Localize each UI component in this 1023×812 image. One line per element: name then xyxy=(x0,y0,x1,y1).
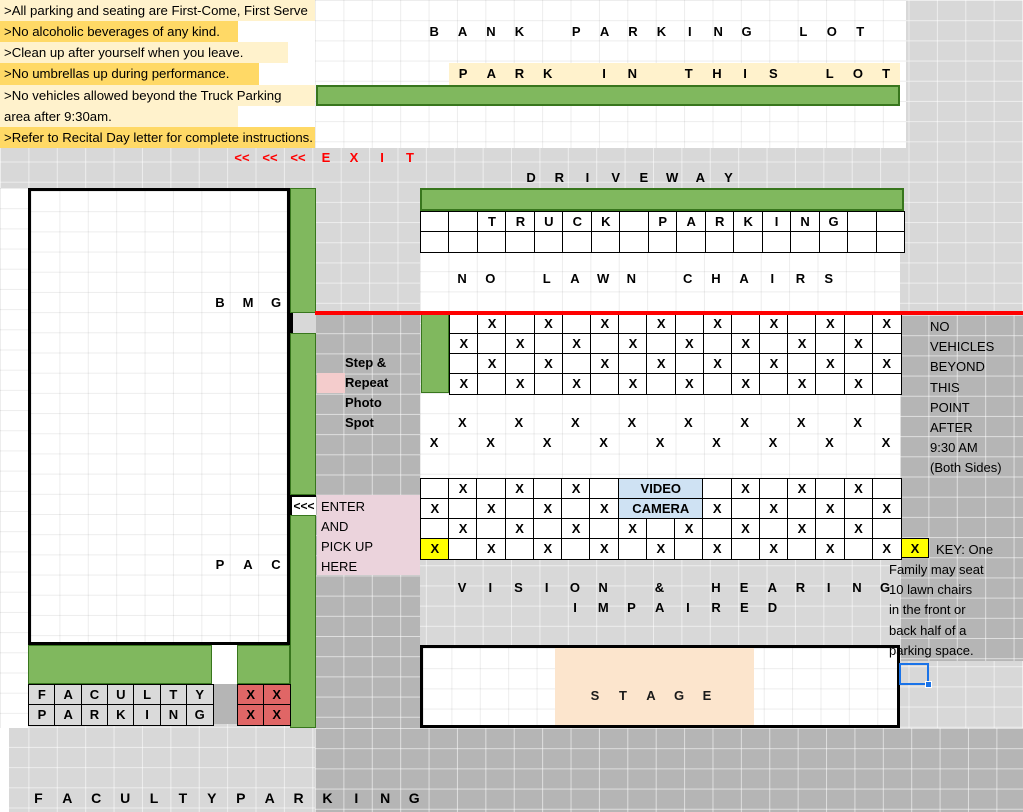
selection-fill-handle[interactable] xyxy=(925,681,932,688)
spreadsheet-canvas[interactable]: >All parking and seating are First-Come,… xyxy=(0,0,1023,812)
no-vehicles-red-line xyxy=(315,311,1023,315)
overlays-layer: <<<X xyxy=(0,0,1023,812)
active-cell-selection[interactable] xyxy=(899,663,929,685)
enter-arrow-cell: <<< xyxy=(290,495,316,515)
key-yellow-x-cell: X xyxy=(901,538,929,558)
